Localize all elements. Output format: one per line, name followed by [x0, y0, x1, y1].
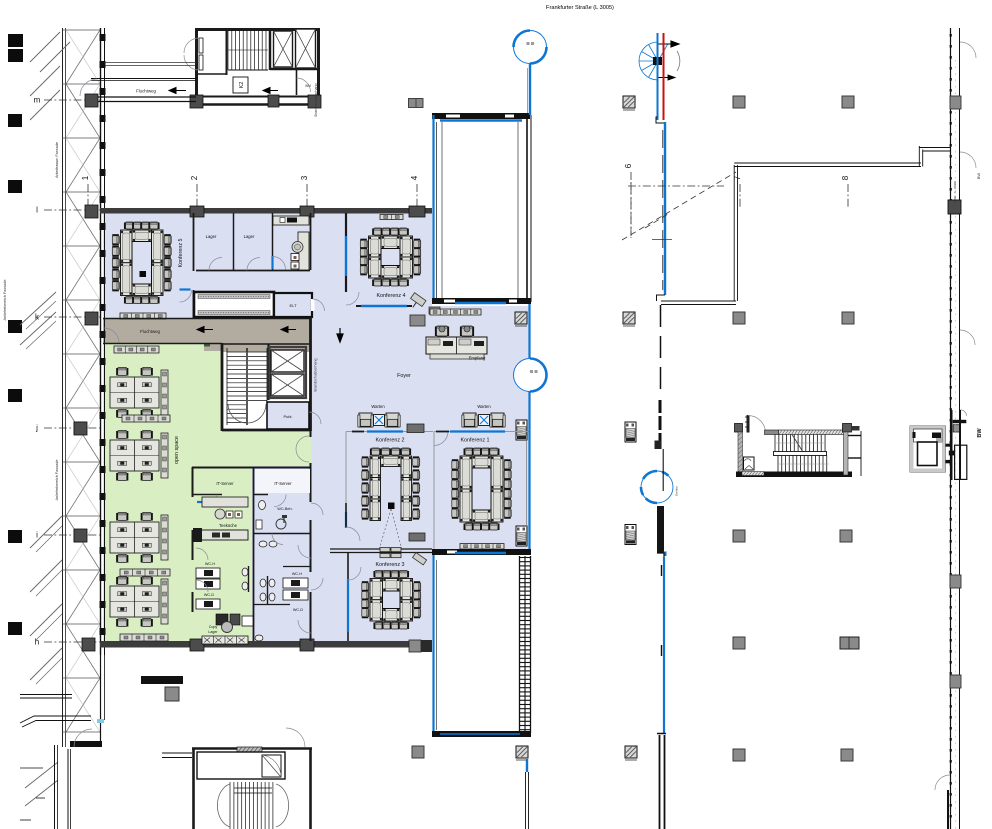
svg-text:open space: open space	[174, 436, 180, 464]
svg-text:1: 1	[81, 175, 90, 180]
svg-text:i: i	[36, 531, 38, 540]
svg-text:WM: WM	[305, 84, 311, 88]
svg-text:BW: BW	[977, 428, 983, 438]
svg-text:ELT: ELT	[289, 303, 297, 308]
svg-text:BW: BW	[976, 173, 981, 180]
svg-text:WC-D: WC-D	[293, 608, 304, 612]
svg-text:Brandschutzvorhang: Brandschutzvorhang	[314, 359, 318, 392]
svg-text:Warten: Warten	[371, 404, 385, 409]
svg-text:2: 2	[190, 175, 199, 180]
svg-text:Lager: Lager	[206, 234, 217, 239]
svg-text:WC-Beh.: WC-Beh.	[277, 507, 292, 511]
svg-text:Warten: Warten	[477, 404, 491, 409]
svg-text:IT-Server: IT-Server	[274, 481, 292, 486]
svg-text:Fluchtweg: Fluchtweg	[136, 89, 157, 94]
svg-text:l: l	[36, 206, 38, 215]
svg-text:Fluchtweg: Fluchtweg	[140, 329, 161, 334]
svg-text:Empfang: Empfang	[469, 356, 486, 361]
svg-text:6: 6	[624, 163, 633, 168]
svg-text:h: h	[35, 638, 39, 647]
svg-text:Foyer: Foyer	[397, 373, 411, 379]
svg-text:3: 3	[300, 175, 309, 180]
svg-text:Anlieferbereich Fassade: Anlieferbereich Fassade	[55, 460, 59, 501]
svg-text:j: j	[35, 424, 38, 433]
svg-text:IT-Server: IT-Server	[216, 481, 234, 486]
svg-text:Frankfurter Straße (L 3005): Frankfurter Straße (L 3005)	[546, 5, 614, 11]
svg-text:Publ.: Publ.	[283, 414, 292, 419]
svg-text:Konferenz 5: Konferenz 5	[178, 238, 184, 267]
svg-text:Konferenz 3: Konferenz 3	[375, 562, 404, 568]
svg-text:8: 8	[841, 175, 850, 180]
svg-text:Lager: Lager	[244, 234, 255, 239]
svg-text:Teeküche: Teeküche	[219, 523, 238, 528]
svg-text:Konferenz 4: Konferenz 4	[376, 293, 405, 299]
svg-text:Arbeitsraum Fassade: Arbeitsraum Fassade	[55, 142, 59, 178]
svg-text:4: 4	[410, 175, 419, 180]
svg-text:WC-H: WC-H	[205, 562, 216, 566]
svg-text:Drehtür: Drehtür	[675, 486, 679, 496]
svg-text:Konferenz 2: Konferenz 2	[375, 438, 404, 444]
svg-text:Konferenz 1: Konferenz 1	[460, 438, 489, 444]
svg-text:Anlieferbereich Fassade: Anlieferbereich Fassade	[3, 280, 7, 321]
svg-text:m: m	[34, 96, 41, 105]
svg-text:WC-D: WC-D	[204, 593, 215, 597]
svg-text:WC-H: WC-H	[292, 572, 303, 576]
svg-text:K2: K2	[239, 82, 245, 89]
svg-text:Lager: Lager	[208, 630, 218, 634]
svg-text:Brandschutzvorhang: Brandschutzvorhang	[314, 84, 318, 117]
svg-text:Copy: Copy	[209, 625, 218, 629]
